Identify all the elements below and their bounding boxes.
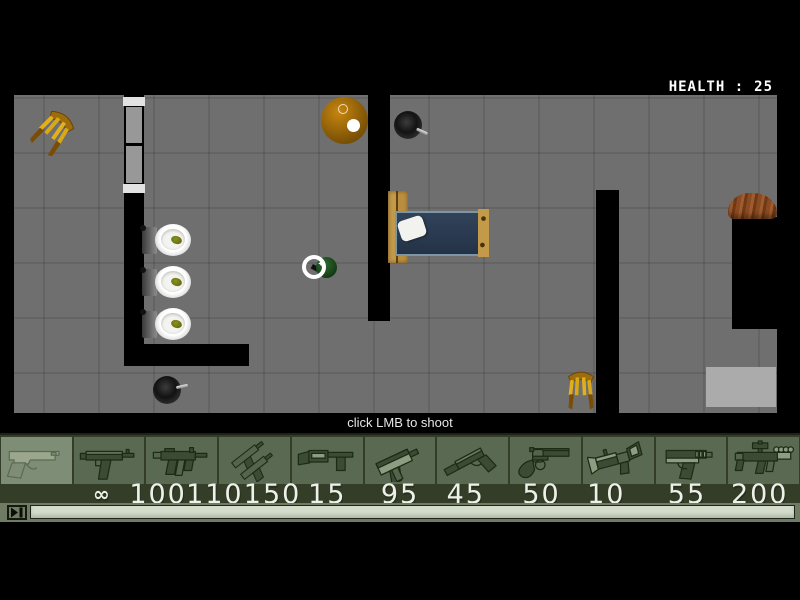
scoped-rifle-icon xyxy=(733,440,795,482)
weapon-slot-desert-eagle[interactable] xyxy=(1,437,72,484)
round-table xyxy=(321,97,368,144)
bed xyxy=(388,191,490,263)
playback-bar xyxy=(0,503,800,522)
mac-10-icon xyxy=(369,440,431,482)
weapon-slot-silenced-pistol[interactable] xyxy=(437,437,508,484)
ammo-count: 95 xyxy=(364,484,437,505)
ammo-row: ∞ 100 110 150 15 95 45 50 10 55 200 xyxy=(0,484,800,505)
health-label: HEALTH : xyxy=(669,79,744,95)
wall xyxy=(732,217,777,329)
hint-text: click LMB to shoot xyxy=(0,413,800,433)
ammo-count: 55 xyxy=(655,484,728,505)
ammo-count: ∞ xyxy=(0,484,73,505)
game-viewport[interactable]: ✦ xyxy=(14,95,777,413)
uzi-icon xyxy=(78,440,140,482)
ammo-count: 200 xyxy=(727,484,800,505)
health-value: 25 xyxy=(754,79,773,95)
lamp xyxy=(347,119,360,132)
ammo-count: 50 xyxy=(509,484,582,505)
seek-track[interactable] xyxy=(30,505,795,519)
mp5-icon xyxy=(151,440,213,482)
bottom-letterbox xyxy=(0,522,800,600)
table-mark xyxy=(338,104,348,114)
door-panel xyxy=(125,106,143,144)
frying-pan xyxy=(153,376,181,404)
chair xyxy=(25,101,83,161)
weapon-slot-mac-10[interactable] xyxy=(365,437,436,484)
desert-eagle-icon xyxy=(5,440,67,482)
wall xyxy=(124,344,249,366)
p99-pistol-icon xyxy=(660,440,722,482)
pan-handle xyxy=(176,384,188,389)
weapon-slot-mp5[interactable] xyxy=(146,437,217,484)
pan-handle xyxy=(416,128,428,136)
toilet-bowl xyxy=(155,266,191,298)
weapon-slot-shotgun[interactable] xyxy=(292,437,363,484)
weapon-slot-scoped-rifle[interactable] xyxy=(728,437,799,484)
door-sill xyxy=(123,184,145,193)
health-display: HEALTH : 25 xyxy=(669,79,773,95)
door-sill xyxy=(123,97,145,106)
toilet xyxy=(142,266,196,299)
weapon-bar: ∞ 100 110 150 15 95 45 50 10 55 200 xyxy=(0,433,800,503)
toilet-bowl xyxy=(155,224,191,256)
bed-footboard xyxy=(478,209,489,257)
door-panel xyxy=(125,145,143,184)
toilet xyxy=(142,224,196,257)
chair xyxy=(565,367,597,411)
muzzle-flash-icon: ✦ xyxy=(317,259,325,270)
rug xyxy=(706,367,776,407)
weapon-slot-dual-tmps[interactable] xyxy=(219,437,290,484)
game-screen: HEALTH : 25 xyxy=(0,0,800,600)
weapon-slot-p99-pistol[interactable] xyxy=(656,437,727,484)
play-pause-icon xyxy=(10,507,24,518)
revolver-icon xyxy=(515,440,577,482)
toilet xyxy=(142,308,196,341)
weapon-slot-uzi[interactable] xyxy=(74,437,145,484)
grenade-launcher-icon xyxy=(587,440,649,482)
wooden-table xyxy=(728,193,777,219)
ammo-count: 15 xyxy=(291,484,364,505)
dual-tmps-icon xyxy=(224,440,286,482)
wall xyxy=(368,95,390,321)
shotgun-icon xyxy=(296,440,358,482)
weapon-slot-revolver[interactable] xyxy=(510,437,581,484)
ammo-count: 10 xyxy=(582,484,655,505)
frying-pan xyxy=(394,111,422,139)
weapon-slots xyxy=(0,435,800,484)
ammo-count: 45 xyxy=(436,484,509,505)
silenced-pistol-icon xyxy=(442,440,504,482)
play-pause-button[interactable] xyxy=(7,505,27,520)
weapon-slot-grenade-launcher[interactable] xyxy=(583,437,654,484)
wall xyxy=(124,194,144,366)
toilet-bowl xyxy=(155,308,191,340)
wall xyxy=(596,190,619,413)
